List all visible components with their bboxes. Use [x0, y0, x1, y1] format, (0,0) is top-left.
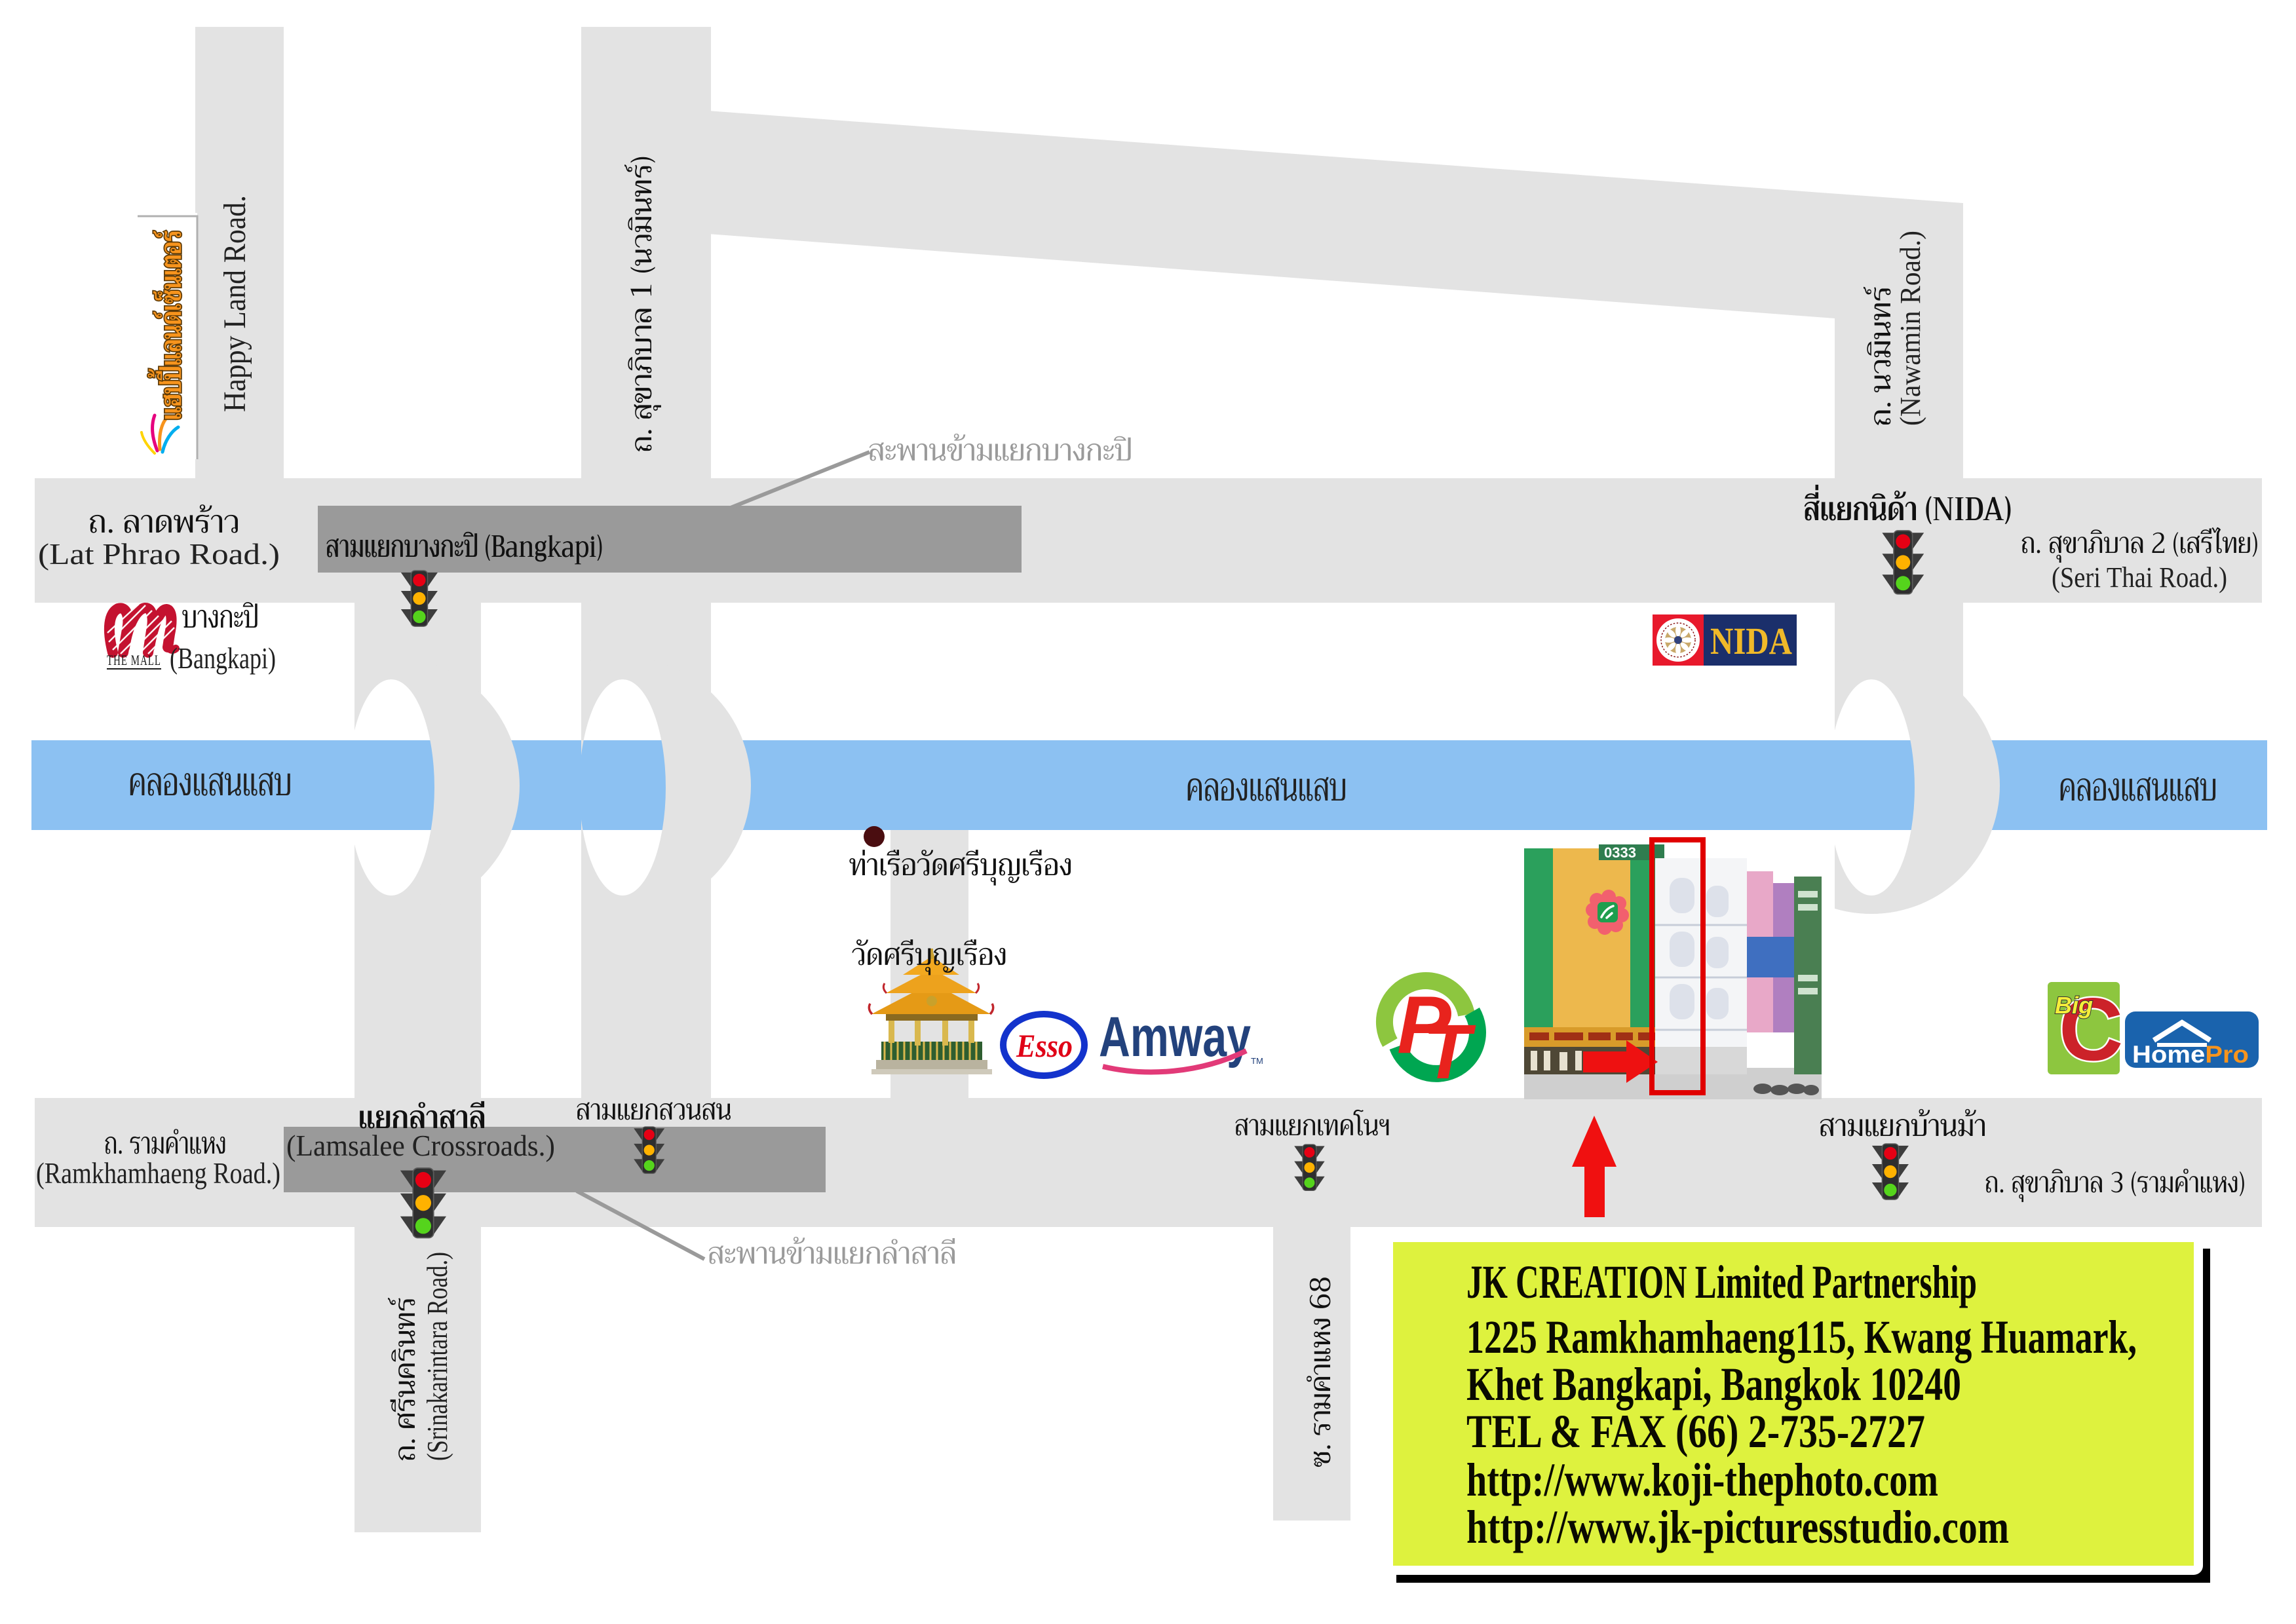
svg-text:TEL & FAX (66) 2-735-2727: TEL & FAX (66) 2-735-2727 — [1466, 1405, 1925, 1458]
svg-text:(Bangkapi): (Bangkapi) — [170, 641, 276, 675]
svg-text:(Lat Phrao Road.): (Lat Phrao Road.) — [38, 537, 280, 571]
svg-text:JK CREATION Limited Partnershi: JK CREATION Limited Partnership — [1466, 1256, 1977, 1308]
svg-text:(Lamsalee Crossroads.): (Lamsalee Crossroads.) — [286, 1129, 555, 1162]
svg-text:Esso: Esso — [1016, 1027, 1073, 1064]
svg-text:HomePro: HomePro — [2132, 1041, 2249, 1068]
svg-text:(Ramkhamhaeng Road.): (Ramkhamhaeng Road.) — [36, 1156, 280, 1190]
svg-text:Khet Bangkapi, Bangkok 10240: Khet Bangkapi, Bangkok 10240 — [1466, 1358, 1961, 1410]
svg-text:THE MALL: THE MALL — [107, 652, 161, 668]
svg-text:Happy Land Road.: Happy Land Road. — [218, 195, 252, 412]
svg-text:Big: Big — [2055, 992, 2093, 1019]
svg-text:(Nawamin Road.): (Nawamin Road.) — [1894, 231, 1926, 426]
svg-text:0333: 0333 — [1604, 844, 1636, 861]
svg-text:http://www.jk-picturesstudio.c: http://www.jk-picturesstudio.com — [1466, 1501, 2009, 1553]
svg-text:1225 Ramkhamhaeng115, Kwang Hu: 1225 Ramkhamhaeng115, Kwang Huamark, — [1466, 1311, 2137, 1363]
svg-text:(Srinakarintara Road.): (Srinakarintara Road.) — [421, 1252, 453, 1461]
svg-text:NIDA: NIDA — [1710, 620, 1792, 662]
svg-text:TM: TM — [1251, 1056, 1263, 1066]
svg-text:http://www.koji-thephoto.com: http://www.koji-thephoto.com — [1466, 1454, 1938, 1506]
svg-text:T: T — [1423, 1009, 1476, 1095]
svg-text:(Seri Thai Road.): (Seri Thai Road.) — [2052, 561, 2227, 594]
